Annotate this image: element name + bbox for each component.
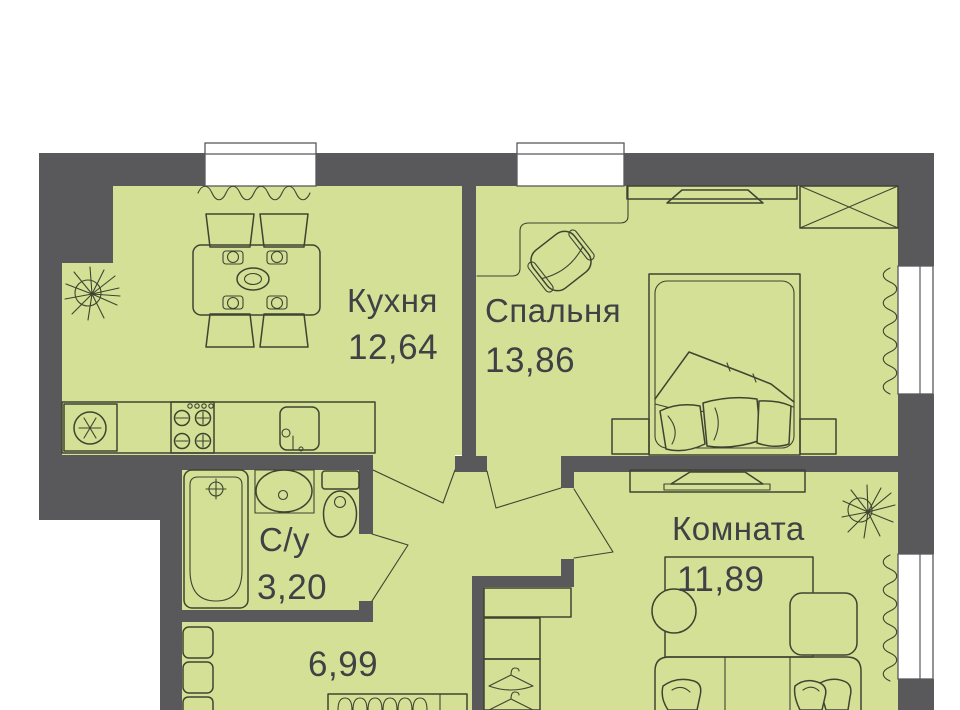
room-right-window: [898, 554, 933, 679]
kitchen-window: [205, 143, 316, 186]
sofa-pillow: [795, 681, 826, 710]
wall-door-cap: [455, 456, 487, 472]
wall-top-left-block: [62, 186, 113, 263]
wall-right-upper: [898, 186, 934, 266]
bathroom-name-label: С/у: [259, 521, 310, 558]
wall-kitchen-bottom: [39, 455, 373, 470]
wall-bath-right-bottom: [359, 601, 373, 610]
floor-plan: Кухня 12,64 Спальня 13,86 С/у 3,20 6,99 …: [0, 0, 960, 710]
wall-left-lower: [160, 470, 182, 710]
wall-bottom-left-block: [39, 470, 160, 520]
bathroom-area-label: 3,20: [257, 568, 327, 607]
bedroom-doorway-floor: [487, 455, 561, 472]
wall-top: [39, 153, 934, 186]
kitchen-doorway-floor: [373, 455, 455, 472]
wall-bath-right-top: [359, 470, 373, 534]
floor-plan-svg: Кухня 12,64 Спальня 13,86 С/у 3,20 6,99 …: [0, 0, 960, 710]
pillow: [703, 398, 761, 447]
bathroom-doorway-floor: [359, 534, 373, 601]
wall-bath-bottom: [182, 610, 373, 622]
bedroom-area-label: 13,86: [485, 341, 575, 380]
pillow: [757, 401, 791, 446]
hallway-area-label: 6,99: [308, 645, 378, 684]
side-table: [790, 593, 857, 655]
kitchen-name-label: Кухня: [347, 282, 438, 319]
kitchen-floor: [62, 183, 462, 455]
wall-kitchen-bedroom: [462, 186, 476, 457]
wall-hall-room-h: [472, 576, 574, 587]
bedroom-name-label: Спальня: [485, 292, 621, 329]
pillow: [660, 405, 705, 451]
wall-hall-room-v: [472, 587, 484, 710]
wall-right-middle: [898, 394, 934, 554]
room-area-label: 11,89: [677, 560, 765, 599]
wall-right-lower: [898, 679, 934, 710]
wall-post-a: [561, 472, 574, 488]
room-name-label: Комната: [672, 510, 805, 547]
bedroom-right-window: [898, 266, 933, 394]
wall-post-b: [561, 559, 574, 576]
sofa-pillow: [662, 679, 701, 710]
bedroom-top-window: [517, 143, 624, 186]
wall-left: [39, 186, 62, 455]
kitchen-area-label: 12,64: [348, 328, 438, 367]
